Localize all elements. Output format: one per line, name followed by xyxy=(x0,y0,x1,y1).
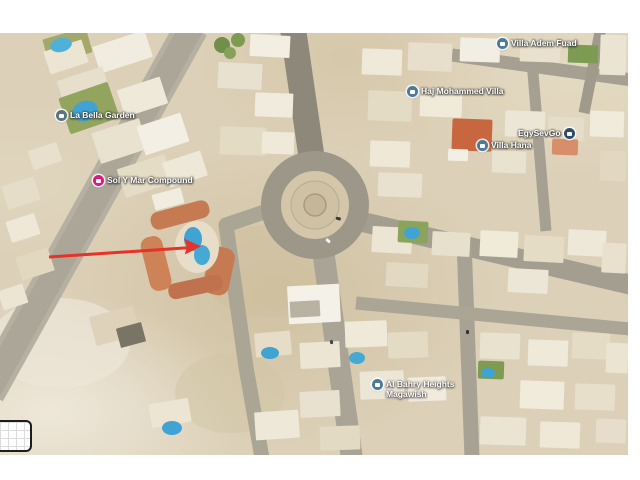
map-layer-thumbnail[interactable] xyxy=(0,420,32,452)
map-label-villa-adem-fuad[interactable]: Villa Adem Fuad xyxy=(497,38,577,49)
roundabout xyxy=(271,161,359,249)
map-label-sol-y-mar-compound[interactable]: Sol Y Mar Compound xyxy=(93,175,193,186)
right-vertical-street xyxy=(532,61,546,231)
buildings-top-center xyxy=(214,33,294,156)
north-road xyxy=(293,33,313,167)
satellite-map[interactable]: La Bella Garden Sol Y Mar Compound Villa… xyxy=(0,33,628,455)
poi-label-text: La Bella Garden xyxy=(70,110,135,121)
document-page: La Bella Garden Sol Y Mar Compound Villa… xyxy=(0,0,640,480)
hotel-icon xyxy=(93,175,104,186)
buildings-bottom-right xyxy=(478,332,628,448)
map-label-al-bahry-heights-magawish[interactable]: Al Bahry Heights Magawish xyxy=(372,379,455,399)
poi-label-text: Al Bahry Heights Magawish xyxy=(386,379,455,399)
lodging-icon xyxy=(56,110,67,121)
map-label-villa-hana[interactable]: Villa Hana xyxy=(477,140,531,151)
right-mid-vertical-road xyxy=(464,241,472,455)
map-label-egysevgo[interactable]: EgySevGo xyxy=(518,128,575,139)
poi-label-text: EgySevGo xyxy=(518,128,561,139)
satellite-imagery xyxy=(0,33,628,455)
lodging-icon xyxy=(372,379,383,390)
poi-label-text: Villa Hana xyxy=(491,140,531,151)
map-label-haj-mohammed-villa[interactable]: Haj Mohammed Villa xyxy=(407,86,504,97)
lodging-icon xyxy=(477,140,488,151)
lodging-icon xyxy=(497,38,508,49)
poi-label-line2: Magawish xyxy=(386,389,455,399)
poi-label-line1: Al Bahry Heights xyxy=(386,379,455,389)
lodging-icon xyxy=(407,86,418,97)
right-horizontal-road xyxy=(356,303,628,329)
poi-label-text: Haj Mohammed Villa xyxy=(421,86,504,97)
map-label-la-bella-garden[interactable]: La Bella Garden xyxy=(56,110,135,121)
poi-label-text: Sol Y Mar Compound xyxy=(107,175,193,186)
place-icon xyxy=(564,128,575,139)
buildings-top-right xyxy=(362,35,627,198)
poi-label-text: Villa Adem Fuad xyxy=(511,38,577,49)
